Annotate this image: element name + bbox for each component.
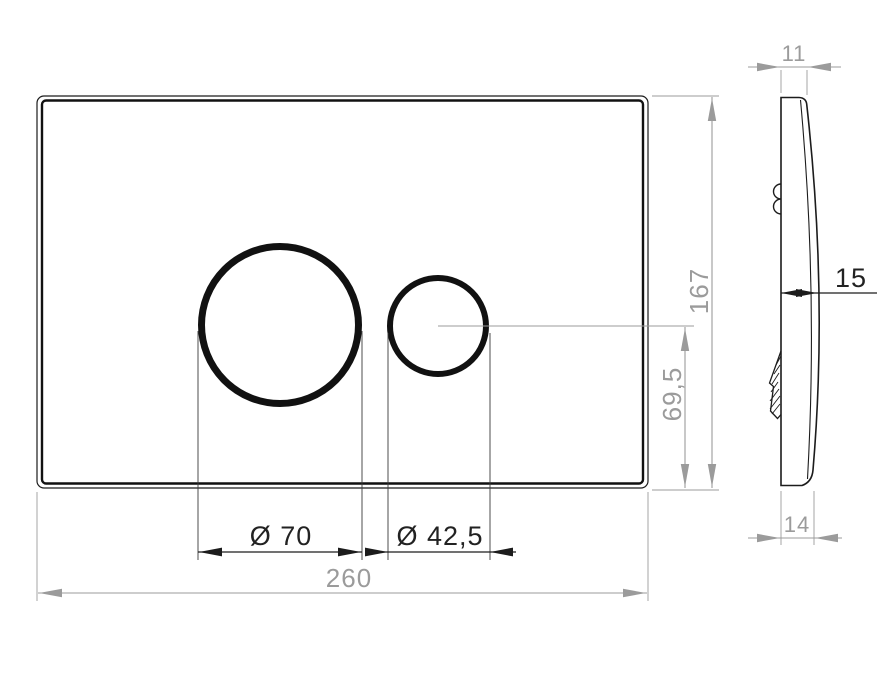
arrowhead-right-icon	[808, 63, 831, 71]
dim-top-edge-depth: 11	[748, 41, 841, 95]
arrowhead-left-icon	[39, 589, 62, 597]
dim-plate-width: 260	[37, 492, 648, 601]
plate-face-edge	[42, 101, 643, 484]
dim-label-axis-height: 69,5	[657, 367, 687, 422]
technical-drawing: Ø 70 Ø 42,5 260 167 69,5	[0, 0, 889, 673]
arrowhead-right-icon	[623, 589, 646, 597]
dim-bottom-edge-depth: 14	[748, 491, 842, 545]
dim-button-axis-height: 69,5	[657, 327, 689, 488]
arrowhead-left-icon	[757, 534, 780, 542]
arrowhead-left-icon	[199, 548, 222, 557]
dim-label-plate-height: 167	[684, 268, 714, 314]
arrowhead-right-icon	[796, 289, 817, 297]
large-flush-button	[202, 247, 359, 404]
arrowhead-left-icon	[757, 63, 780, 71]
dim-label-plate-width: 260	[326, 563, 372, 593]
arrowhead-left-icon	[365, 548, 388, 557]
dim-label-bottom-depth: 14	[784, 512, 810, 537]
arrowhead-right-icon	[815, 534, 838, 542]
dim-label-large-diameter: Ø 70	[250, 521, 313, 551]
arrowhead-up-icon	[708, 98, 716, 121]
lower-mounting-clip	[770, 351, 782, 419]
dim-label-mid-depth: 15	[835, 263, 867, 293]
dim-label-small-diameter: Ø 42,5	[396, 521, 483, 551]
dim-mid-depth: 15	[781, 263, 877, 297]
arrowhead-right-icon	[338, 548, 361, 557]
front-view	[37, 96, 694, 488]
arrowhead-down-icon	[708, 464, 716, 487]
plate-outer-edge	[37, 96, 648, 488]
upper-mounting-clip	[774, 184, 781, 214]
drawing-canvas: Ø 70 Ø 42,5 260 167 69,5	[0, 0, 889, 673]
arrowhead-right-icon	[490, 548, 513, 557]
dim-large-button-diameter: Ø 70	[198, 331, 362, 560]
side-face-curve	[801, 100, 812, 479]
arrowhead-down-icon	[681, 464, 689, 487]
arrowhead-up-icon	[681, 328, 689, 351]
dim-label-top-depth: 11	[782, 41, 807, 66]
dim-small-button-diameter: Ø 42,5	[365, 333, 516, 560]
